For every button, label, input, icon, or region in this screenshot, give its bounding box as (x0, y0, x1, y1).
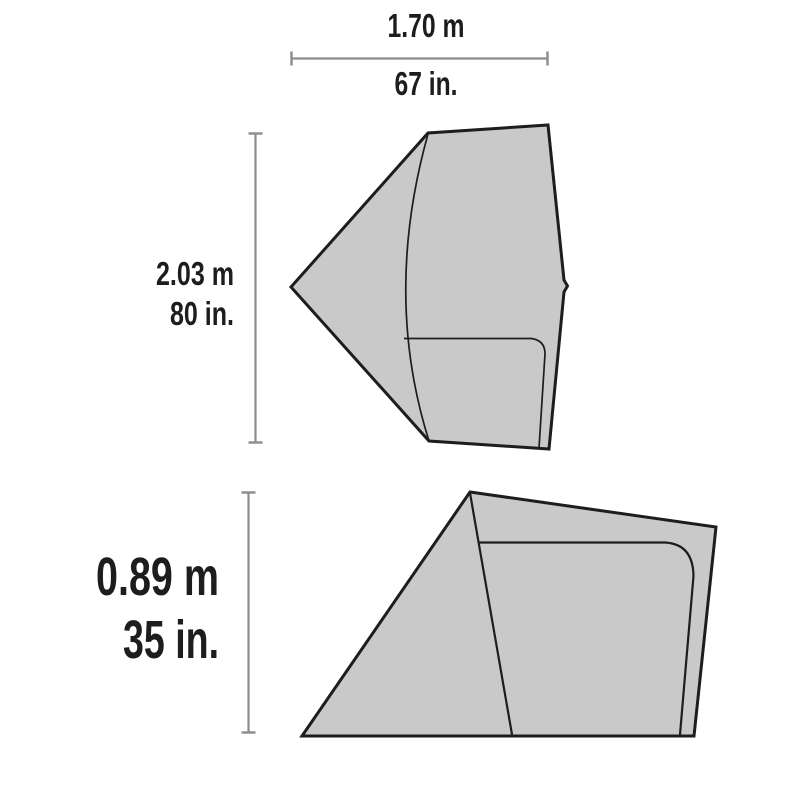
length-dimension: 2.03 m 80 in. (156, 134, 263, 443)
height-dimension: 0.89 m 35 in. (96, 493, 256, 733)
top-view-outline (291, 125, 568, 449)
length-imperial-label: 80 in. (170, 295, 234, 332)
tent-top-view (291, 125, 568, 449)
height-metric-label: 0.89 m (96, 547, 219, 607)
length-metric-label: 2.03 m (156, 255, 234, 292)
diagram-canvas: 1.70 m 67 in. 2.03 m 80 in. 0.89 m 35 in… (0, 0, 800, 800)
side-view-outline (302, 492, 716, 736)
width-dimension: 1.70 m 67 in. (291, 7, 548, 102)
width-metric-label: 1.70 m (388, 7, 465, 44)
height-imperial-label: 35 in. (123, 610, 219, 670)
width-imperial-label: 67 in. (395, 65, 458, 102)
tent-side-view (302, 492, 716, 736)
tent-dimension-diagram: 1.70 m 67 in. 2.03 m 80 in. 0.89 m 35 in… (0, 0, 800, 800)
